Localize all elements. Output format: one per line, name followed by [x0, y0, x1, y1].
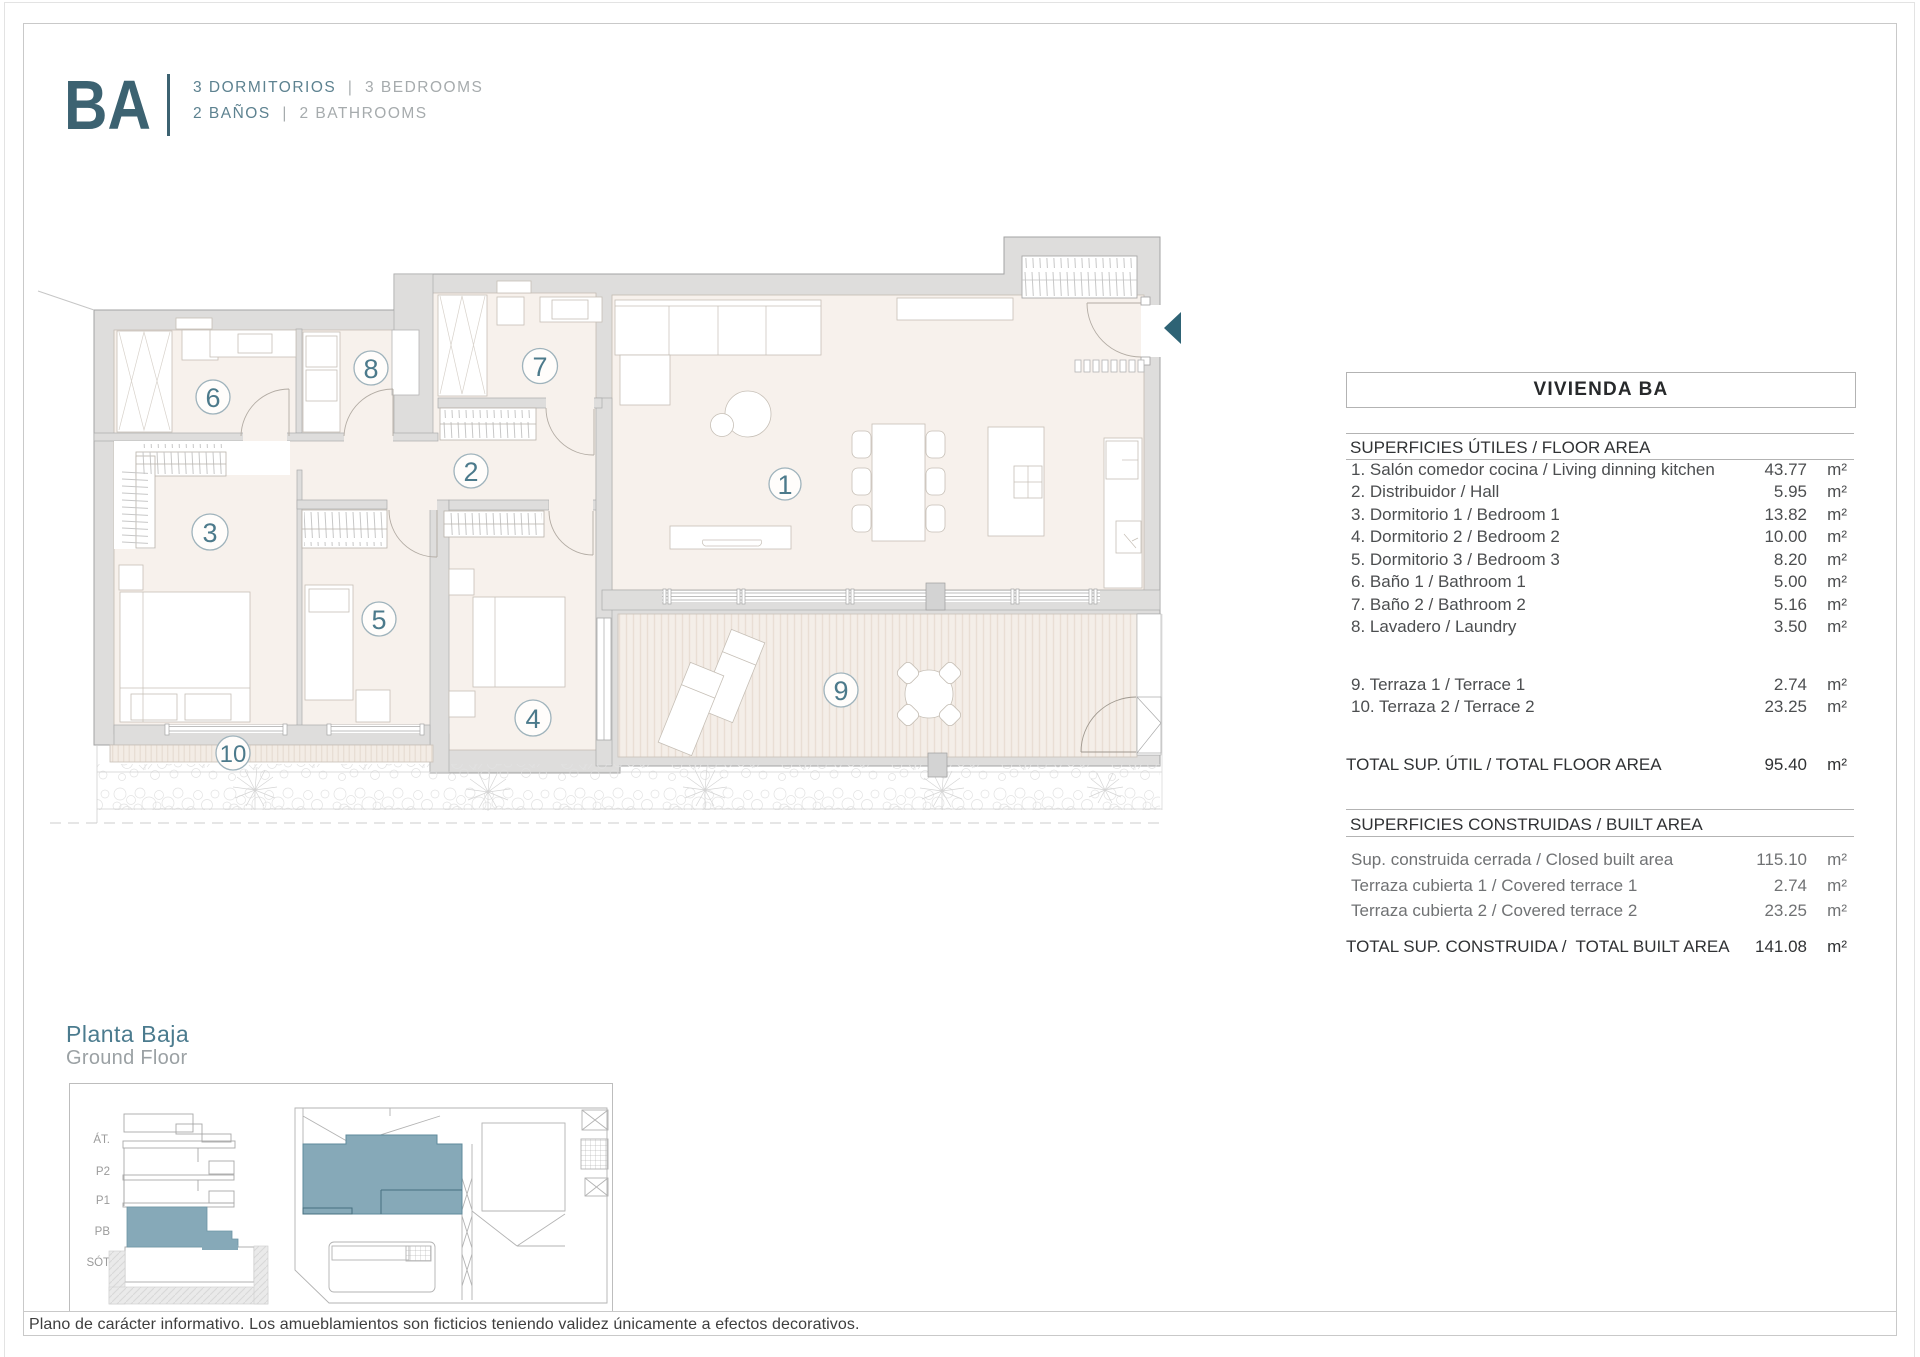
svg-text:P1: P1: [96, 1195, 110, 1207]
svg-text:5: 5: [371, 605, 386, 635]
svg-text:3: 3: [202, 518, 217, 548]
svg-text:P2: P2: [96, 1166, 110, 1178]
svg-text:ÁT.: ÁT.: [93, 1133, 110, 1146]
svg-text:SÓT.: SÓT.: [86, 1256, 112, 1269]
svg-text:9: 9: [833, 676, 848, 706]
svg-text:8: 8: [363, 354, 378, 384]
svg-text:10: 10: [220, 741, 247, 768]
svg-text:2: 2: [463, 457, 478, 487]
svg-text:6: 6: [205, 383, 220, 413]
svg-text:4: 4: [525, 704, 540, 734]
svg-text:7: 7: [532, 352, 547, 382]
svg-text:PB: PB: [95, 1226, 111, 1238]
svg-text:1: 1: [777, 470, 792, 500]
